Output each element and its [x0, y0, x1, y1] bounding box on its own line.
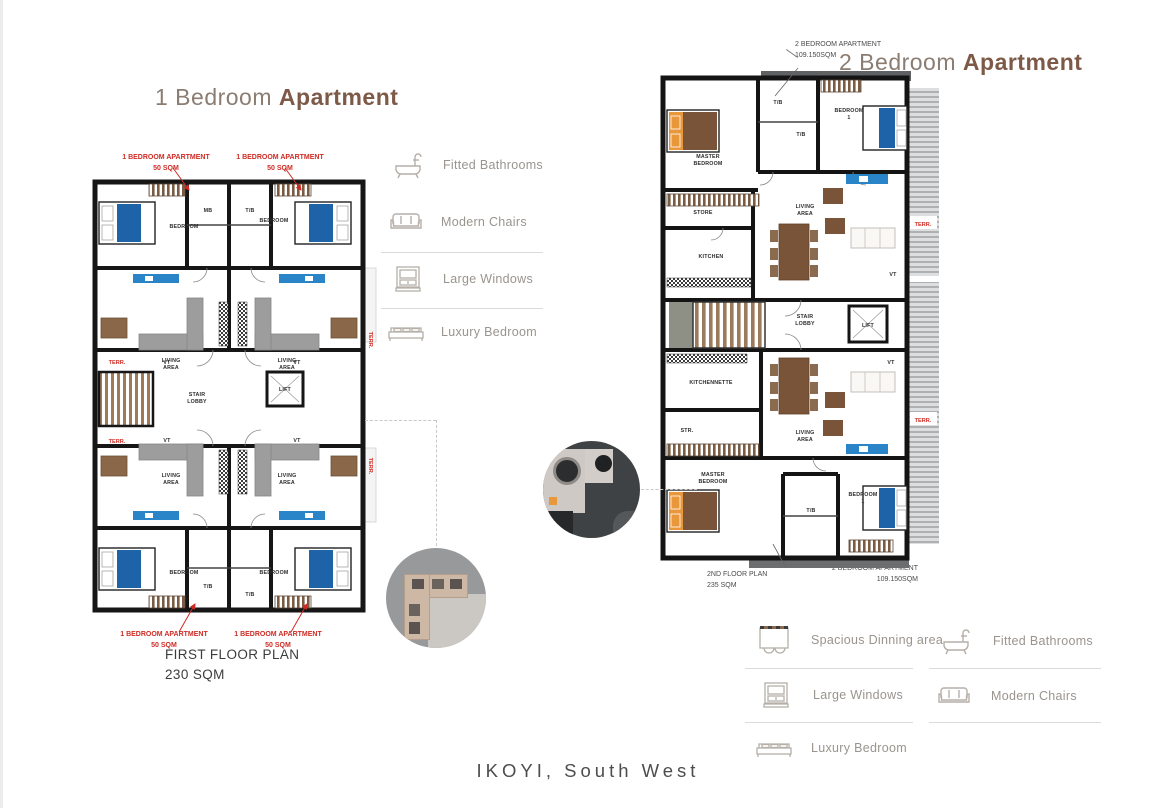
legend-divider	[929, 668, 1101, 669]
two-bed-title-bold: Apartment	[963, 49, 1083, 75]
bed	[295, 202, 351, 244]
svg-text:VT: VT	[163, 438, 171, 444]
dashed-connector	[365, 420, 436, 421]
sofa	[851, 228, 895, 248]
svg-text:TERR.: TERR.	[915, 418, 932, 424]
location-title: IKOYI, South West	[3, 760, 1170, 782]
svg-text:AREA: AREA	[797, 211, 813, 217]
svg-text:LIVING: LIVING	[162, 473, 181, 479]
armchair	[825, 218, 845, 234]
svg-text:VT: VT	[293, 360, 301, 366]
bed-icon	[383, 322, 429, 342]
bed	[99, 202, 155, 244]
master-bed	[667, 110, 719, 152]
legend-large-windows-2: Large Windows	[753, 680, 903, 710]
bed	[863, 106, 907, 150]
terrace-band	[907, 88, 939, 276]
svg-text:TERR.: TERR.	[367, 458, 373, 475]
svg-text:LIVING: LIVING	[796, 430, 815, 436]
master-bed	[667, 490, 719, 532]
svg-text:BEDROOM: BEDROOM	[693, 161, 722, 167]
svg-text:T/B: T/B	[806, 508, 815, 514]
svg-text:BEDROOM: BEDROOM	[698, 479, 727, 485]
svg-text:KITCHEN: KITCHEN	[699, 254, 724, 260]
one-bed-title: 1 Bedroom Apartment	[155, 84, 398, 111]
svg-text:VT: VT	[293, 438, 301, 444]
dashed-connector	[641, 489, 697, 490]
svg-text:LIVING: LIVING	[278, 473, 297, 479]
svg-text:TERR.: TERR.	[915, 222, 932, 228]
stairs	[99, 372, 153, 426]
one-bed-title-bold: Apartment	[279, 84, 399, 110]
svg-text:1: 1	[847, 115, 850, 121]
svg-text:T/B: T/B	[796, 132, 805, 138]
burner	[595, 455, 612, 472]
svg-text:MB: MB	[204, 208, 213, 214]
svg-text:T/B: T/B	[773, 100, 782, 106]
pillow	[412, 579, 424, 589]
svg-text:TERR.: TERR.	[109, 360, 126, 366]
svg-text:BEDROOM: BEDROOM	[169, 570, 198, 576]
legend-luxury-bedroom: Luxury Bedroom	[383, 322, 537, 342]
legend-luxury-bedroom-2: Luxury Bedroom	[751, 738, 907, 758]
kitchen-photo-inset	[543, 441, 640, 538]
stairs	[693, 302, 765, 348]
svg-text:LOBBY: LOBBY	[795, 321, 815, 327]
svg-text:STORE: STORE	[693, 210, 712, 216]
pillow	[409, 622, 420, 634]
svg-text:BEDROOM: BEDROOM	[848, 492, 877, 498]
dining-set	[770, 358, 818, 414]
svg-text:VT: VT	[887, 360, 895, 366]
svg-text:1: 1	[861, 499, 864, 505]
one-bed-title-light: 1 Bedroom	[155, 84, 272, 110]
legend-large-windows: Large Windows	[385, 264, 533, 294]
svg-text:STAIR: STAIR	[797, 314, 814, 320]
kitchen-detail	[613, 511, 640, 538]
legend-modern-chairs-2: Modern Chairs	[931, 684, 1077, 708]
bathtub-icon	[385, 150, 431, 180]
dining-table-icon	[751, 622, 797, 658]
second-floor-caption: 2ND FLOOR PLAN 235 SQM	[707, 569, 767, 591]
tv-console-detail	[859, 446, 868, 452]
bed	[295, 548, 351, 590]
sofa-icon	[931, 684, 977, 708]
armchair	[823, 188, 843, 204]
tv-console-detail	[859, 176, 868, 182]
pillow	[450, 579, 462, 589]
svg-text:AREA: AREA	[163, 480, 179, 486]
kitchen-detail	[547, 511, 573, 535]
svg-text:VT: VT	[163, 360, 171, 366]
svg-text:LIFT: LIFT	[279, 387, 292, 393]
svg-text:LOBBY: LOBBY	[187, 399, 207, 405]
legend-divider	[381, 308, 543, 309]
pillow	[409, 604, 420, 616]
svg-text:TERR.: TERR.	[367, 332, 373, 349]
svg-text:STAIR: STAIR	[189, 392, 206, 398]
armchair	[823, 420, 843, 436]
svg-text:AREA: AREA	[279, 480, 295, 486]
legend-divider	[929, 722, 1101, 723]
sink	[553, 457, 581, 485]
first-floor-plan-drawing: BEDROOM BEDROOM BEDROOM BEDROOM MB T/B T…	[87, 150, 379, 650]
svg-text:STR.: STR.	[681, 428, 694, 434]
bed	[99, 548, 155, 590]
stair-landing	[669, 302, 693, 348]
legend-divider	[745, 668, 913, 669]
pillow	[432, 579, 444, 589]
second-floor-plan-drawing: MASTER BEDROOM T/B T/B BEDROOM 1 STORE K…	[653, 66, 945, 571]
svg-text:MASTER: MASTER	[696, 154, 720, 160]
window-icon	[753, 680, 799, 710]
svg-text:T/B: T/B	[245, 208, 254, 214]
svg-text:LIVING: LIVING	[796, 204, 815, 210]
svg-text:BEDROOM: BEDROOM	[259, 218, 288, 224]
sofa-icon	[383, 210, 429, 234]
legend-divider	[745, 722, 913, 723]
svg-text:LIFT: LIFT	[862, 323, 875, 329]
armchair	[825, 392, 845, 408]
svg-text:BEDROOM: BEDROOM	[169, 224, 198, 230]
sofa	[851, 372, 895, 392]
first-floor-caption: FIRST FLOOR PLAN 230 SQM	[165, 645, 299, 684]
rug	[428, 594, 486, 648]
svg-text:VT: VT	[889, 272, 897, 278]
svg-text:KITCHENNETTE: KITCHENNETTE	[689, 380, 733, 386]
bed-icon	[751, 738, 797, 758]
svg-text:BEDROOM: BEDROOM	[259, 570, 288, 576]
svg-text:AREA: AREA	[797, 437, 813, 443]
legend-divider	[381, 252, 543, 253]
kitchen-detail	[549, 497, 557, 505]
two-bed-top-label: 2 BEDROOM APARTMENT 109.150SQM	[795, 40, 915, 61]
svg-text:BEDROOM: BEDROOM	[834, 108, 863, 114]
dining-set	[770, 224, 818, 280]
legend-modern-chairs: Modern Chairs	[383, 210, 527, 234]
svg-text:T/B: T/B	[203, 584, 212, 590]
legend-fitted-bathrooms-2: Fitted Bathrooms	[933, 626, 1093, 656]
legend-fitted-bathrooms: Fitted Bathrooms	[385, 150, 543, 180]
svg-text:TERR.: TERR.	[109, 439, 126, 445]
window-icon	[385, 264, 431, 294]
bathtub-icon	[933, 626, 979, 656]
sofa-photo-inset	[386, 548, 486, 648]
svg-text:T/B: T/B	[245, 592, 254, 598]
svg-text:MASTER: MASTER	[701, 472, 725, 478]
page: 1 Bedroom Apartment 2 Bedroom Apartment …	[0, 0, 1170, 808]
legend-spacious-dining: Spacious Dinning area	[751, 622, 943, 658]
dashed-connector	[436, 420, 437, 546]
